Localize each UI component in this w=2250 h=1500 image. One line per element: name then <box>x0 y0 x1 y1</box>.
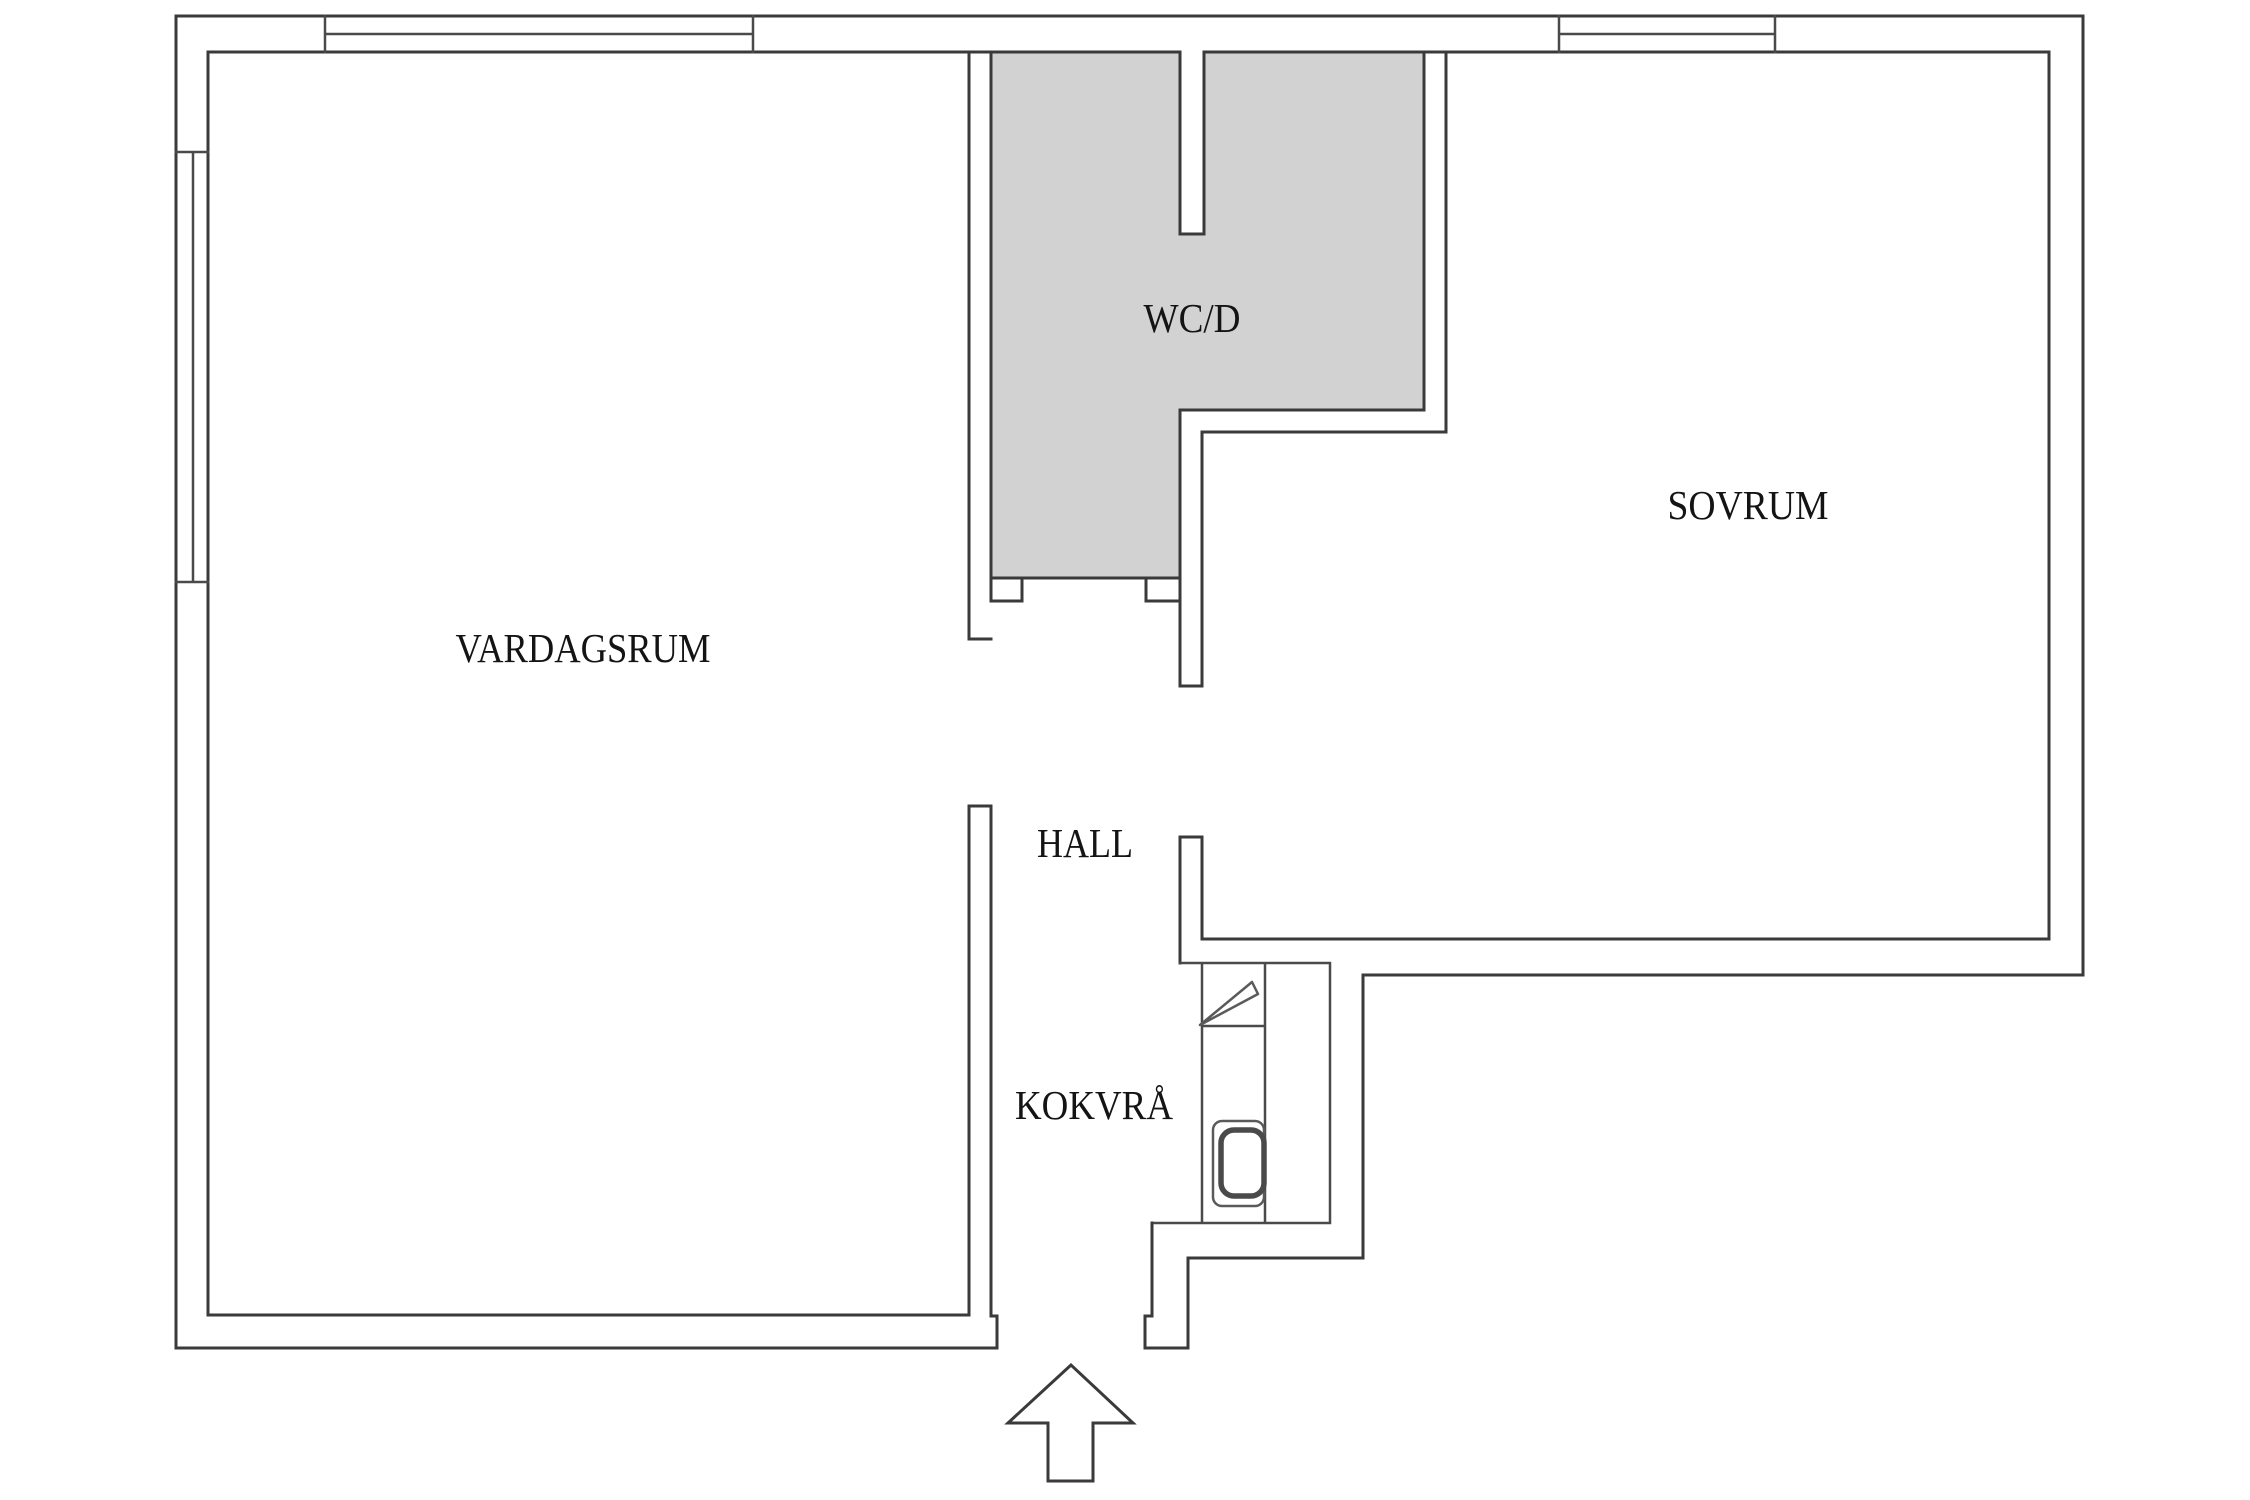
kitchen-sink-bowl <box>1221 1130 1264 1196</box>
partition-livingroom-lower <box>969 806 997 1348</box>
wc-door-jamb-right <box>1146 578 1180 601</box>
window-top-left <box>325 16 753 52</box>
floor-plan: VARDAGSRUM WC/D SOVRUM HALL KOKVRÅ <box>0 0 2250 1500</box>
room-label-sovrum: SOVRUM <box>1668 482 1829 528</box>
room-label-wc-d: WC/D <box>1144 295 1241 341</box>
room-label-hall: HALL <box>1037 820 1133 866</box>
stove-triangle-icon <box>1200 982 1258 1025</box>
room-label-kokvra: KOKVRÅ <box>1015 1082 1173 1128</box>
partition-livingroom-upper <box>969 52 991 639</box>
window-left <box>176 152 208 582</box>
floor-plan-canvas: VARDAGSRUM WC/D SOVRUM HALL KOKVRÅ <box>0 0 2250 1500</box>
room-label-vardagsrum: VARDAGSRUM <box>456 625 711 671</box>
kitchen-entry-wall <box>1145 1223 1152 1348</box>
window-top-right <box>1559 16 1775 52</box>
partition-hall-lower <box>1180 837 1202 963</box>
wc-door-jamb-left <box>991 578 1022 601</box>
entrance-arrow-icon <box>1008 1365 1133 1481</box>
